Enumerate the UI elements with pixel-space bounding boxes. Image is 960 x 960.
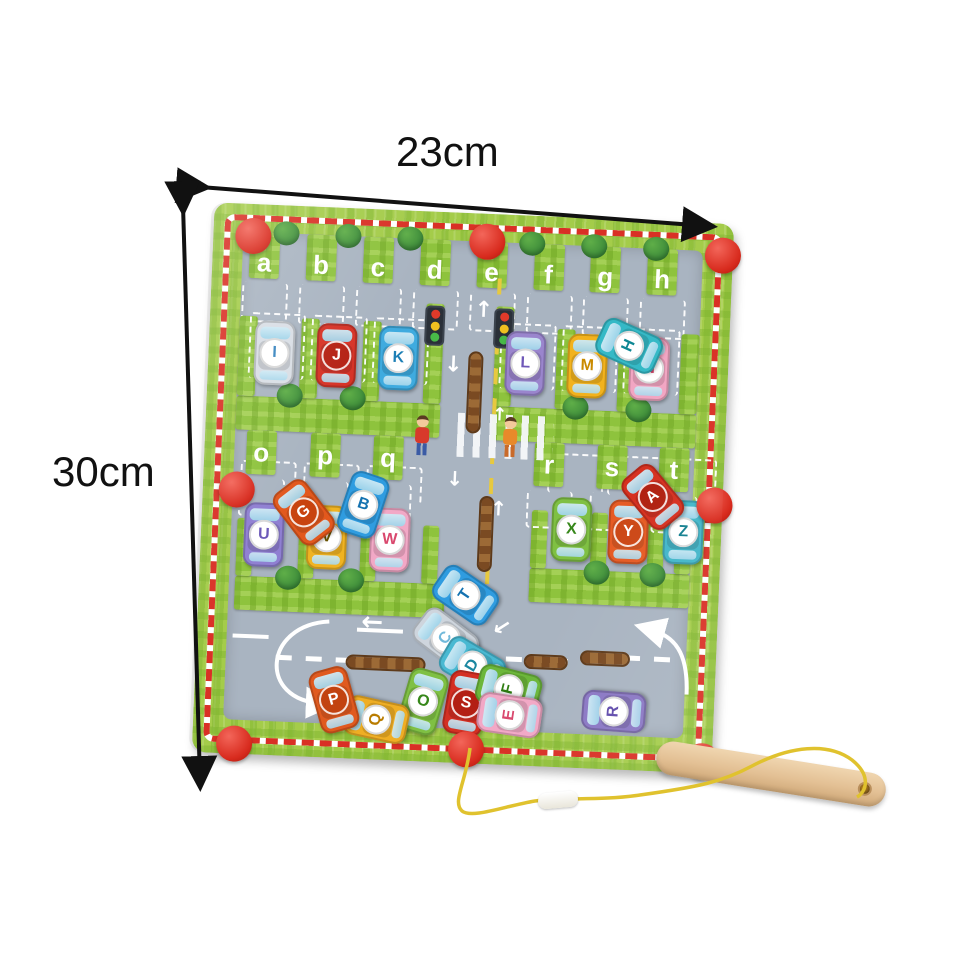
kid-dress [503, 429, 518, 446]
car-rear-window [556, 547, 584, 557]
car-P: P [306, 664, 362, 736]
girl-figure [498, 416, 522, 463]
road-arrow: ↑ [474, 299, 493, 322]
car-rear-window [572, 383, 600, 393]
car-R: R [580, 689, 647, 734]
tree [335, 223, 362, 248]
road-arrow: ← [489, 614, 516, 642]
car-rear-window [634, 386, 662, 396]
car-I: I [253, 320, 296, 386]
road-strip [421, 525, 439, 584]
car-rear-window [631, 699, 642, 728]
tree [273, 221, 300, 246]
bead-track [580, 650, 631, 667]
car-rear-window [668, 550, 696, 560]
slot-label-d: d [419, 239, 451, 286]
slot-label-p: p [309, 433, 341, 478]
string-bead [537, 790, 578, 809]
road-strip [678, 334, 699, 415]
traffic-light-icon [424, 305, 446, 346]
traffic-light-lamp [430, 332, 439, 341]
height-dimension-label: 30cm [52, 448, 155, 496]
car-rear-window [259, 370, 287, 380]
magnetic-wand [654, 739, 888, 809]
traffic-light-lamp [430, 321, 439, 330]
car-J: J [315, 323, 358, 389]
slot-label-o: o [245, 430, 277, 475]
product-image: 23cm 30cm abcdefghopqrst↑↓↑↓↑←←IJKLMNHUV… [0, 0, 960, 960]
corner-knob [215, 725, 252, 762]
car-rear-window [375, 557, 403, 567]
car-rear-window [383, 376, 411, 386]
car-K: K [377, 325, 420, 391]
road-arrow: ↓ [446, 468, 464, 489]
width-dimension-label: 23cm [396, 128, 499, 176]
car-X: X [550, 497, 593, 563]
kid-head [505, 417, 517, 429]
slot-label-b: b [305, 234, 337, 281]
traffic-light-lamp [499, 324, 508, 333]
bead-track [523, 654, 568, 671]
car-rear-window [510, 381, 538, 391]
corner-knob [704, 237, 741, 274]
traffic-light-lamp [431, 310, 440, 319]
car-E: E [475, 691, 544, 740]
road-arrow: ← [361, 609, 384, 636]
road-arrow: ↑ [490, 498, 508, 519]
corner-knob [696, 487, 733, 524]
tree [397, 226, 424, 251]
wand-hole [859, 783, 870, 794]
traffic-light-lamp [499, 313, 508, 322]
road-arrow: ↓ [444, 354, 463, 377]
corner-knob [447, 731, 484, 768]
kid-head [417, 415, 429, 427]
maze-board: abcdefghopqrst↑↓↑↓↑←←IJKLMNHUVWGBXYZATCD… [192, 202, 735, 773]
kid-shirt [415, 427, 430, 444]
car-rear-window [249, 552, 277, 562]
kid-legs [504, 445, 514, 457]
car-rear-window [312, 555, 340, 565]
car-rear-window [613, 549, 641, 559]
slot-label-c: c [362, 237, 394, 284]
boy-figure [410, 415, 434, 462]
car-L: L [504, 331, 547, 397]
slot-label-q: q [372, 435, 404, 480]
kid-legs [416, 443, 426, 455]
car-rear-window [321, 373, 349, 383]
